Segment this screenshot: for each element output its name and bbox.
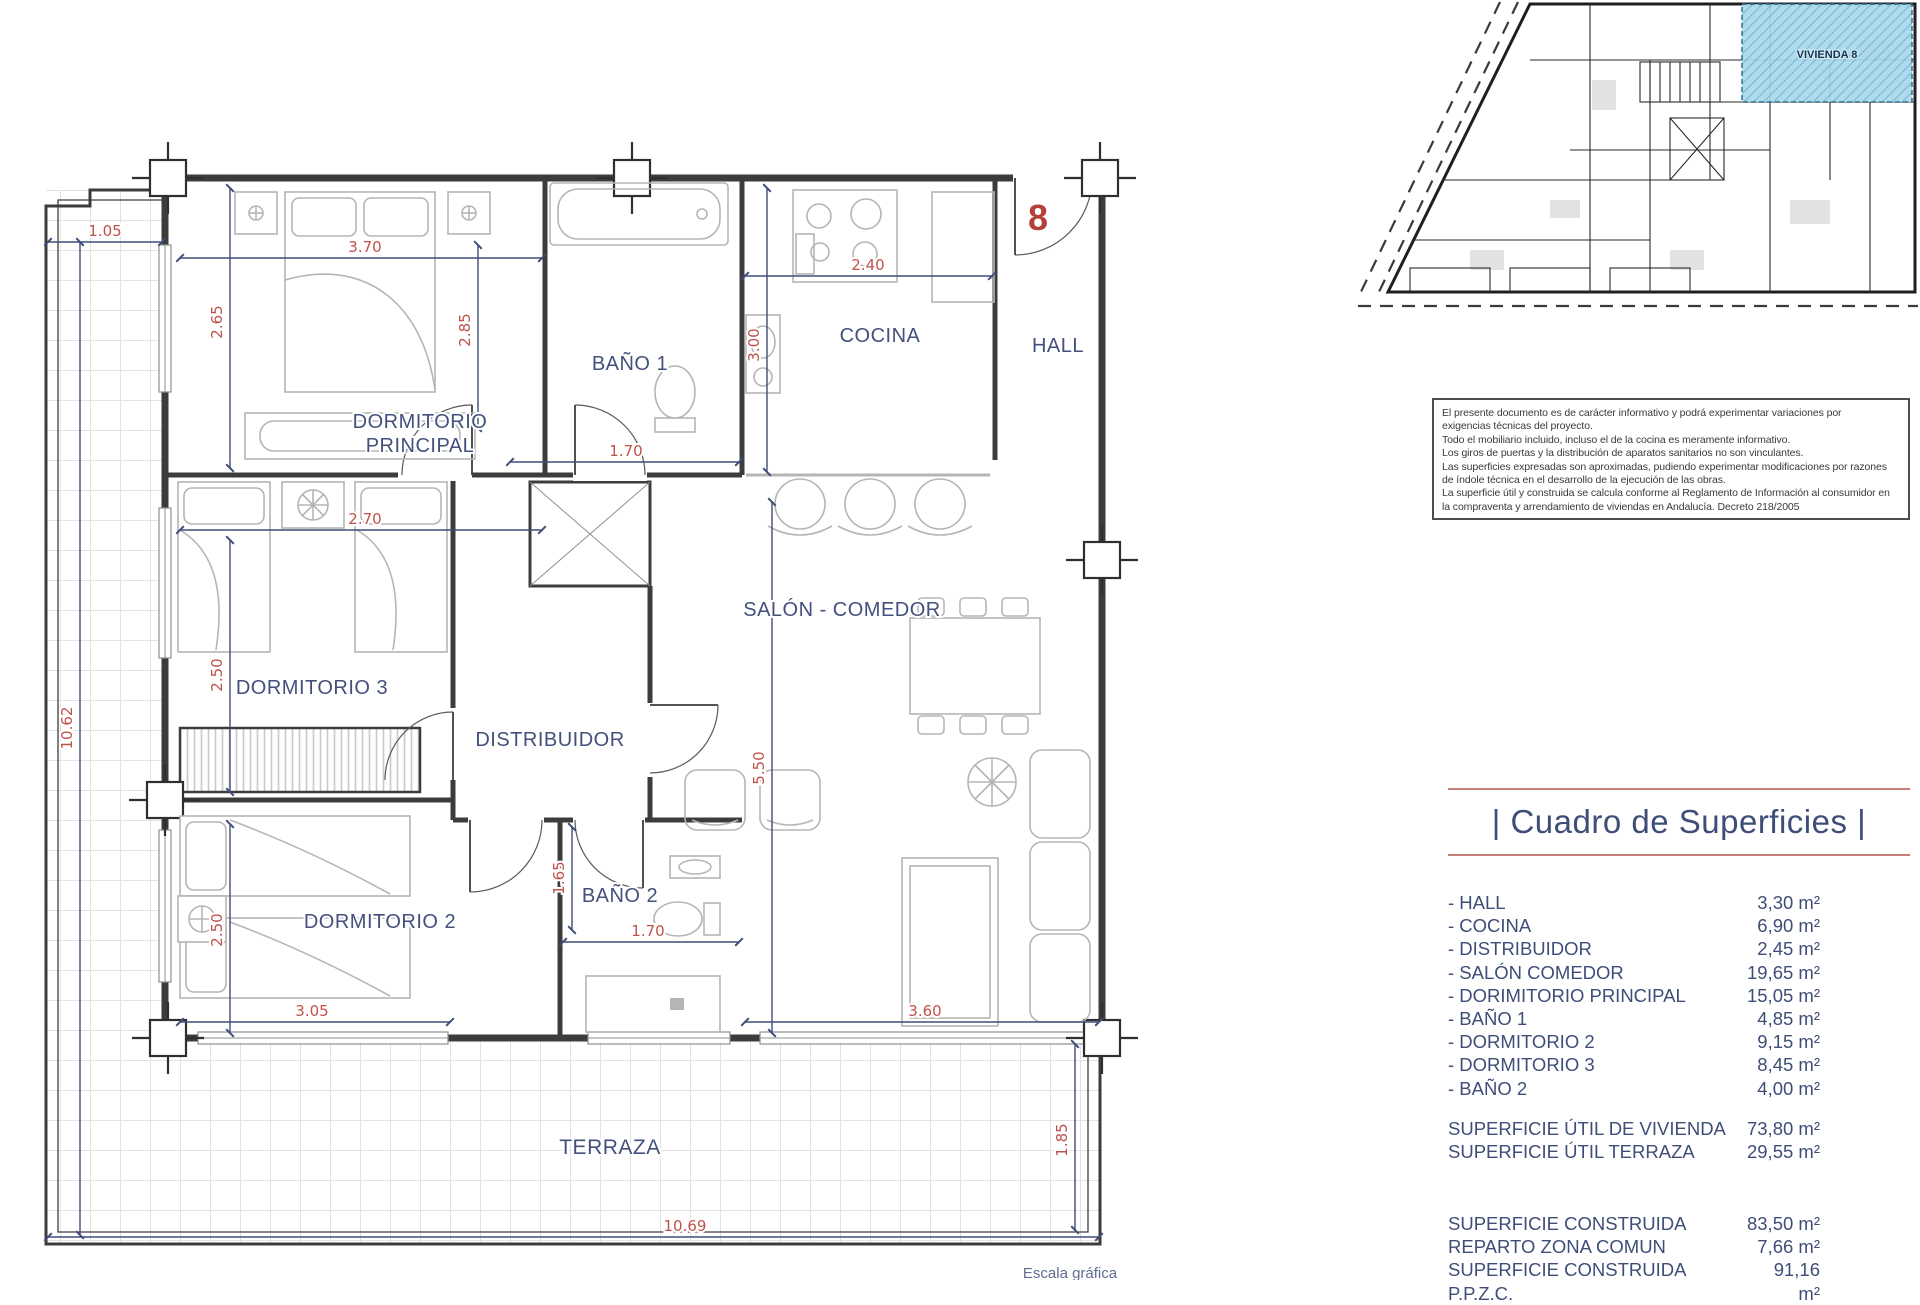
disclaimer-line: La superficie útil y construida se calcu… xyxy=(1442,487,1900,500)
surface-row: REPARTO ZONA COMUN7,66 m² xyxy=(1448,1235,1820,1258)
highlighted-unit: VIVIENDA 8 xyxy=(1742,4,1912,102)
disclaimer-line: de índole técnica en el desarrollo de la… xyxy=(1442,474,1900,487)
floor-plan: 1.05 3.70 2.65 2.85 2.40 3.00 1.70 2.70 … xyxy=(30,130,1140,1280)
surface-label: SUPERFICIE ÚTIL TERRAZA xyxy=(1448,1140,1695,1163)
disclaimer-box: El presente documento es de carácter inf… xyxy=(1432,398,1910,520)
surface-value: 7,66 m² xyxy=(1757,1235,1820,1258)
label-dormitorio-principal-2: PRINCIPAL xyxy=(366,435,475,457)
label-distribuidor: DISTRIBUIDOR xyxy=(475,729,624,751)
surface-row: - DORMITORIO 38,45 m² xyxy=(1448,1053,1820,1076)
surface-row: - DISTRIBUIDOR2,45 m² xyxy=(1448,937,1820,960)
surface-row: - COCINA6,90 m² xyxy=(1448,914,1820,937)
surface-value: 19,65 m² xyxy=(1747,961,1820,984)
surface-row: SUPERFICIE CONSTRUIDA P.P.Z.C.91,16 m² xyxy=(1448,1258,1820,1304)
surfaces-built-list: SUPERFICIE CONSTRUIDA83,50 m² REPARTO ZO… xyxy=(1448,1212,1820,1305)
dim-terraza-bottom-height: 1.85 xyxy=(1053,1123,1071,1156)
surfaces-room-list: - HALL3,30 m² - COCINA6,90 m² - DISTRIBU… xyxy=(1448,891,1820,1100)
surface-label: SUPERFICIE CONSTRUIDA xyxy=(1448,1212,1686,1235)
surface-value: 4,00 m² xyxy=(1757,1077,1820,1100)
surface-label: - COCINA xyxy=(1448,914,1531,937)
overview-key-plan: VIVIENDA 8 xyxy=(1340,0,1920,335)
surface-value: 2,45 m² xyxy=(1757,937,1820,960)
surface-row: SUPERFICIE ÚTIL DE VIVIENDA73,80 m² xyxy=(1448,1117,1820,1140)
surface-label: - DORMITORIO 3 xyxy=(1448,1053,1595,1076)
label-terraza: TERRAZA xyxy=(559,1136,661,1159)
surface-label: - SALÓN COMEDOR xyxy=(1448,961,1624,984)
surface-label: SUPERFICIE CONSTRUIDA P.P.Z.C. xyxy=(1448,1258,1749,1304)
disclaimer-line: Los giros de puertas y la distribución d… xyxy=(1442,447,1900,460)
surface-value: 15,05 m² xyxy=(1747,984,1820,1007)
surface-value: 6,90 m² xyxy=(1757,914,1820,937)
surface-row: - SALÓN COMEDOR19,65 m² xyxy=(1448,961,1820,984)
surface-label: - DISTRIBUIDOR xyxy=(1448,937,1592,960)
disclaimer-line: la compraventa y arrendamiento de vivien… xyxy=(1442,501,1900,514)
dim-bano2-width: 1.70 xyxy=(631,922,664,940)
surface-label: - DORIMITORIO PRINCIPAL xyxy=(1448,984,1686,1007)
label-bano2: BAÑO 2 xyxy=(582,883,658,907)
surface-row: - HALL3,30 m² xyxy=(1448,891,1820,914)
surfaces-title: | Cuadro de Superficies | xyxy=(1448,788,1910,856)
disclaimer-line: Todo el mobiliario incluido, incluso el … xyxy=(1442,434,1900,447)
dim-cocina-width: 2.40 xyxy=(851,256,884,274)
dim-terraza-bottom-width: 10.69 xyxy=(664,1217,707,1235)
surface-value: 8,45 m² xyxy=(1757,1053,1820,1076)
unit-number: 8 xyxy=(1028,197,1048,238)
surface-value: 29,55 m² xyxy=(1747,1140,1820,1163)
surface-row: - BAÑO 14,85 m² xyxy=(1448,1007,1820,1030)
dim-dorm3-height: 2.50 xyxy=(208,658,226,691)
dim-salon-width: 3.60 xyxy=(908,1002,941,1020)
dim-bano1-height: 2.85 xyxy=(456,313,474,346)
surface-label: - DORMITORIO 2 xyxy=(1448,1030,1595,1053)
label-salon-comedor: SALÓN - COMEDOR xyxy=(743,598,941,621)
label-dormitorio3: DORMITORIO 3 xyxy=(236,677,388,699)
label-bano1: BAÑO 1 xyxy=(592,351,668,375)
surface-row: SUPERFICIE CONSTRUIDA83,50 m² xyxy=(1448,1212,1820,1235)
dim-dp-width: 3.70 xyxy=(348,238,381,256)
surface-label: - HALL xyxy=(1448,891,1506,914)
scale-caption: Escala gráfica xyxy=(1023,1265,1118,1280)
label-dormitorio-principal-1: DORMITORIO xyxy=(353,411,488,433)
dim-bano2-pass: 1.65 xyxy=(550,861,568,894)
dim-terraza-top: 1.05 xyxy=(88,222,121,240)
surface-value: 91,16 m² xyxy=(1749,1258,1820,1304)
surface-row: - BAÑO 24,00 m² xyxy=(1448,1077,1820,1100)
surface-label: SUPERFICIE ÚTIL DE VIVIENDA xyxy=(1448,1117,1726,1140)
surfaces-useful-list: SUPERFICIE ÚTIL DE VIVIENDA73,80 m² SUPE… xyxy=(1448,1117,1820,1163)
dim-total-height: 10.62 xyxy=(58,707,76,750)
dim-dorm3-width: 2.70 xyxy=(348,510,381,528)
dim-dp-height: 2.65 xyxy=(208,305,226,338)
dim-cocina-height: 3.00 xyxy=(745,328,763,361)
doors xyxy=(385,178,1092,892)
disclaimer-line: exigencias técnicas del proyecto. xyxy=(1442,420,1900,433)
dim-dorm2-height: 2.50 xyxy=(208,913,226,946)
surface-row: - DORIMITORIO PRINCIPAL15,05 m² xyxy=(1448,984,1820,1007)
label-cocina: COCINA xyxy=(840,325,921,347)
dim-salon-height: 5.50 xyxy=(750,751,768,784)
disclaimer-line: Las superficies expresadas son aproximad… xyxy=(1442,461,1900,474)
highlighted-unit-label: VIVIENDA 8 xyxy=(1797,49,1858,61)
surface-value: 73,80 m² xyxy=(1747,1117,1820,1140)
surface-label: - BAÑO 2 xyxy=(1448,1077,1527,1100)
floorplan-sheet: { "unit": { "number": "8" }, "overview":… xyxy=(0,0,1920,1280)
surface-value: 4,85 m² xyxy=(1757,1007,1820,1030)
surface-value: 3,30 m² xyxy=(1757,891,1820,914)
surface-row: - DORMITORIO 29,15 m² xyxy=(1448,1030,1820,1053)
label-hall: HALL xyxy=(1032,335,1084,357)
dim-dorm2-width: 3.05 xyxy=(295,1002,328,1020)
surface-value: 9,15 m² xyxy=(1757,1030,1820,1053)
surface-row: SUPERFICIE ÚTIL TERRAZA29,55 m² xyxy=(1448,1140,1820,1163)
label-dormitorio2: DORMITORIO 2 xyxy=(304,911,456,933)
closet-dorm3 xyxy=(180,728,420,792)
dim-bano1-width: 1.70 xyxy=(609,442,642,460)
surface-label: - BAÑO 1 xyxy=(1448,1007,1527,1030)
surface-value: 83,50 m² xyxy=(1747,1212,1820,1235)
disclaimer-line: El presente documento es de carácter inf… xyxy=(1442,407,1900,420)
surface-label: REPARTO ZONA COMUN xyxy=(1448,1235,1666,1258)
